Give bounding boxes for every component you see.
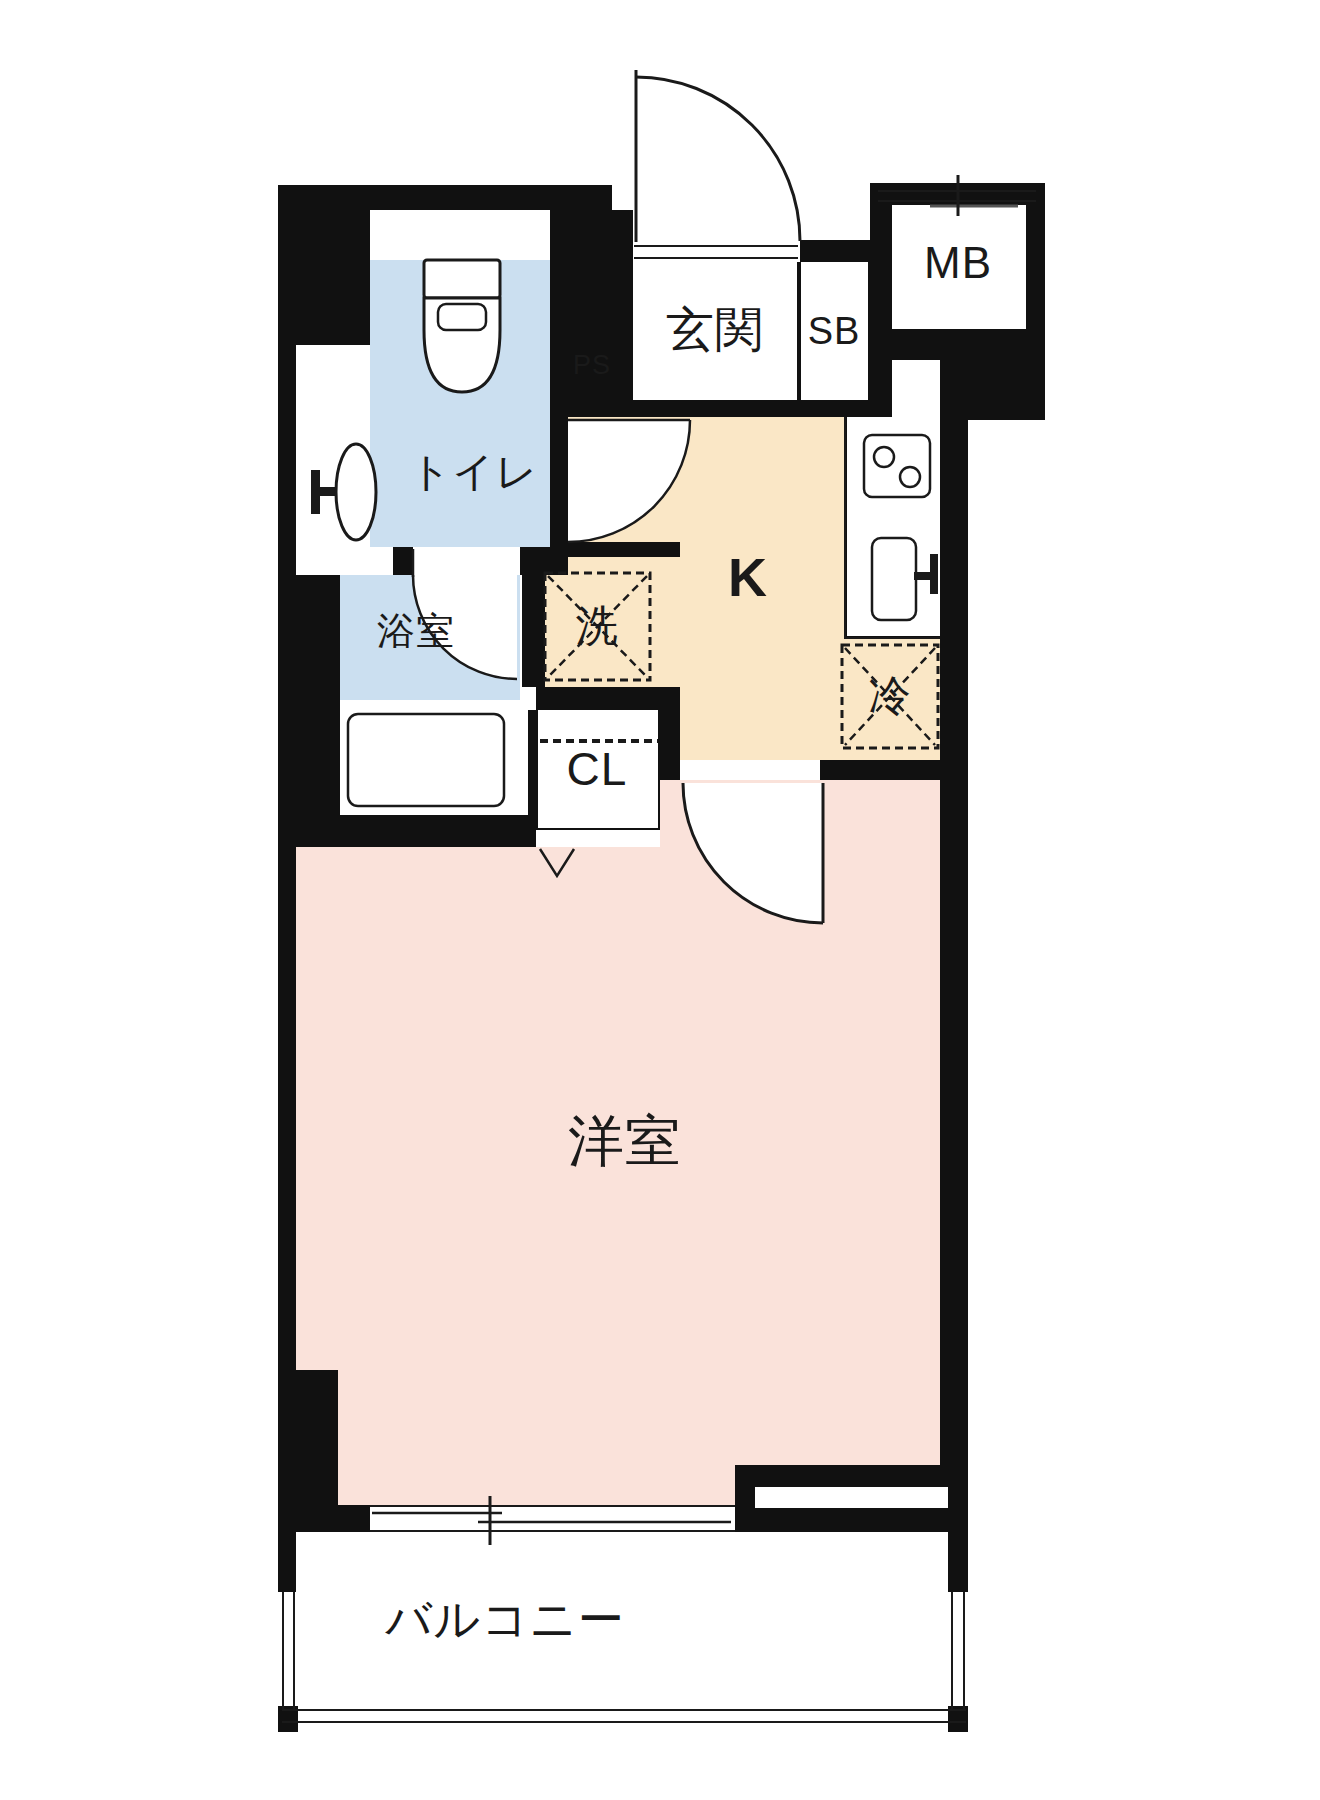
balcony-corner-post (278, 1706, 298, 1732)
room-western-floor (660, 780, 940, 847)
wall-segment (393, 547, 413, 575)
basin-alcove-floor (296, 345, 370, 547)
wall-segment (278, 1370, 338, 1532)
wall-segment (940, 420, 968, 1465)
wall-segment (528, 710, 538, 830)
room-toilet-floor (370, 260, 550, 547)
wall-segment (296, 575, 340, 815)
toilet-counter-floor (370, 210, 550, 260)
wall-segment (940, 360, 1045, 420)
bathtub-zone-floor (340, 700, 520, 815)
wall-segment (948, 1532, 968, 1592)
wall-segment (568, 210, 633, 417)
floor-plan-canvas: 玄関 SB PS MB トイレ 浴室 洗 K 冷 CL 洋室 バルコニー (0, 0, 1320, 1800)
wall-segment (278, 345, 296, 1370)
wall-core-stripe (755, 1487, 948, 1508)
genkan-label: 玄関 (666, 298, 764, 362)
shoe-box-label: SB (808, 310, 861, 353)
room-western-floor (296, 1465, 735, 1505)
entrance-door-arc-icon (636, 70, 800, 242)
pipe-space-label: PS (573, 350, 611, 381)
bathroom-label: 浴室 (377, 606, 455, 657)
wall-segment (565, 542, 680, 557)
western-room-label: 洋室 (568, 1104, 682, 1180)
wall-segment (278, 185, 370, 345)
kitchen-label: K (728, 546, 768, 608)
window-band-floor (370, 1505, 735, 1532)
wall-segment (820, 760, 940, 780)
refrigerator-label: 冷 (869, 668, 912, 724)
balcony-corner-post (948, 1706, 968, 1732)
balcony-label: バルコニー (385, 1589, 624, 1651)
passage-floor (296, 547, 393, 575)
wall-segment (633, 400, 892, 417)
washer-label: 洗 (576, 598, 619, 654)
wall-segment (536, 687, 680, 710)
wall-segment (550, 210, 568, 575)
wall-segment (522, 553, 545, 687)
closet-opening-floor (538, 830, 660, 847)
toilet-label: トイレ (410, 445, 539, 500)
meter-box-label: MB (924, 238, 992, 288)
wall-segment (278, 1532, 296, 1592)
wall-segment (660, 687, 680, 780)
wall-segment (296, 815, 536, 847)
closet-label: CL (567, 742, 628, 796)
wall-segment (338, 1505, 370, 1532)
kitchen-counter (845, 417, 940, 638)
